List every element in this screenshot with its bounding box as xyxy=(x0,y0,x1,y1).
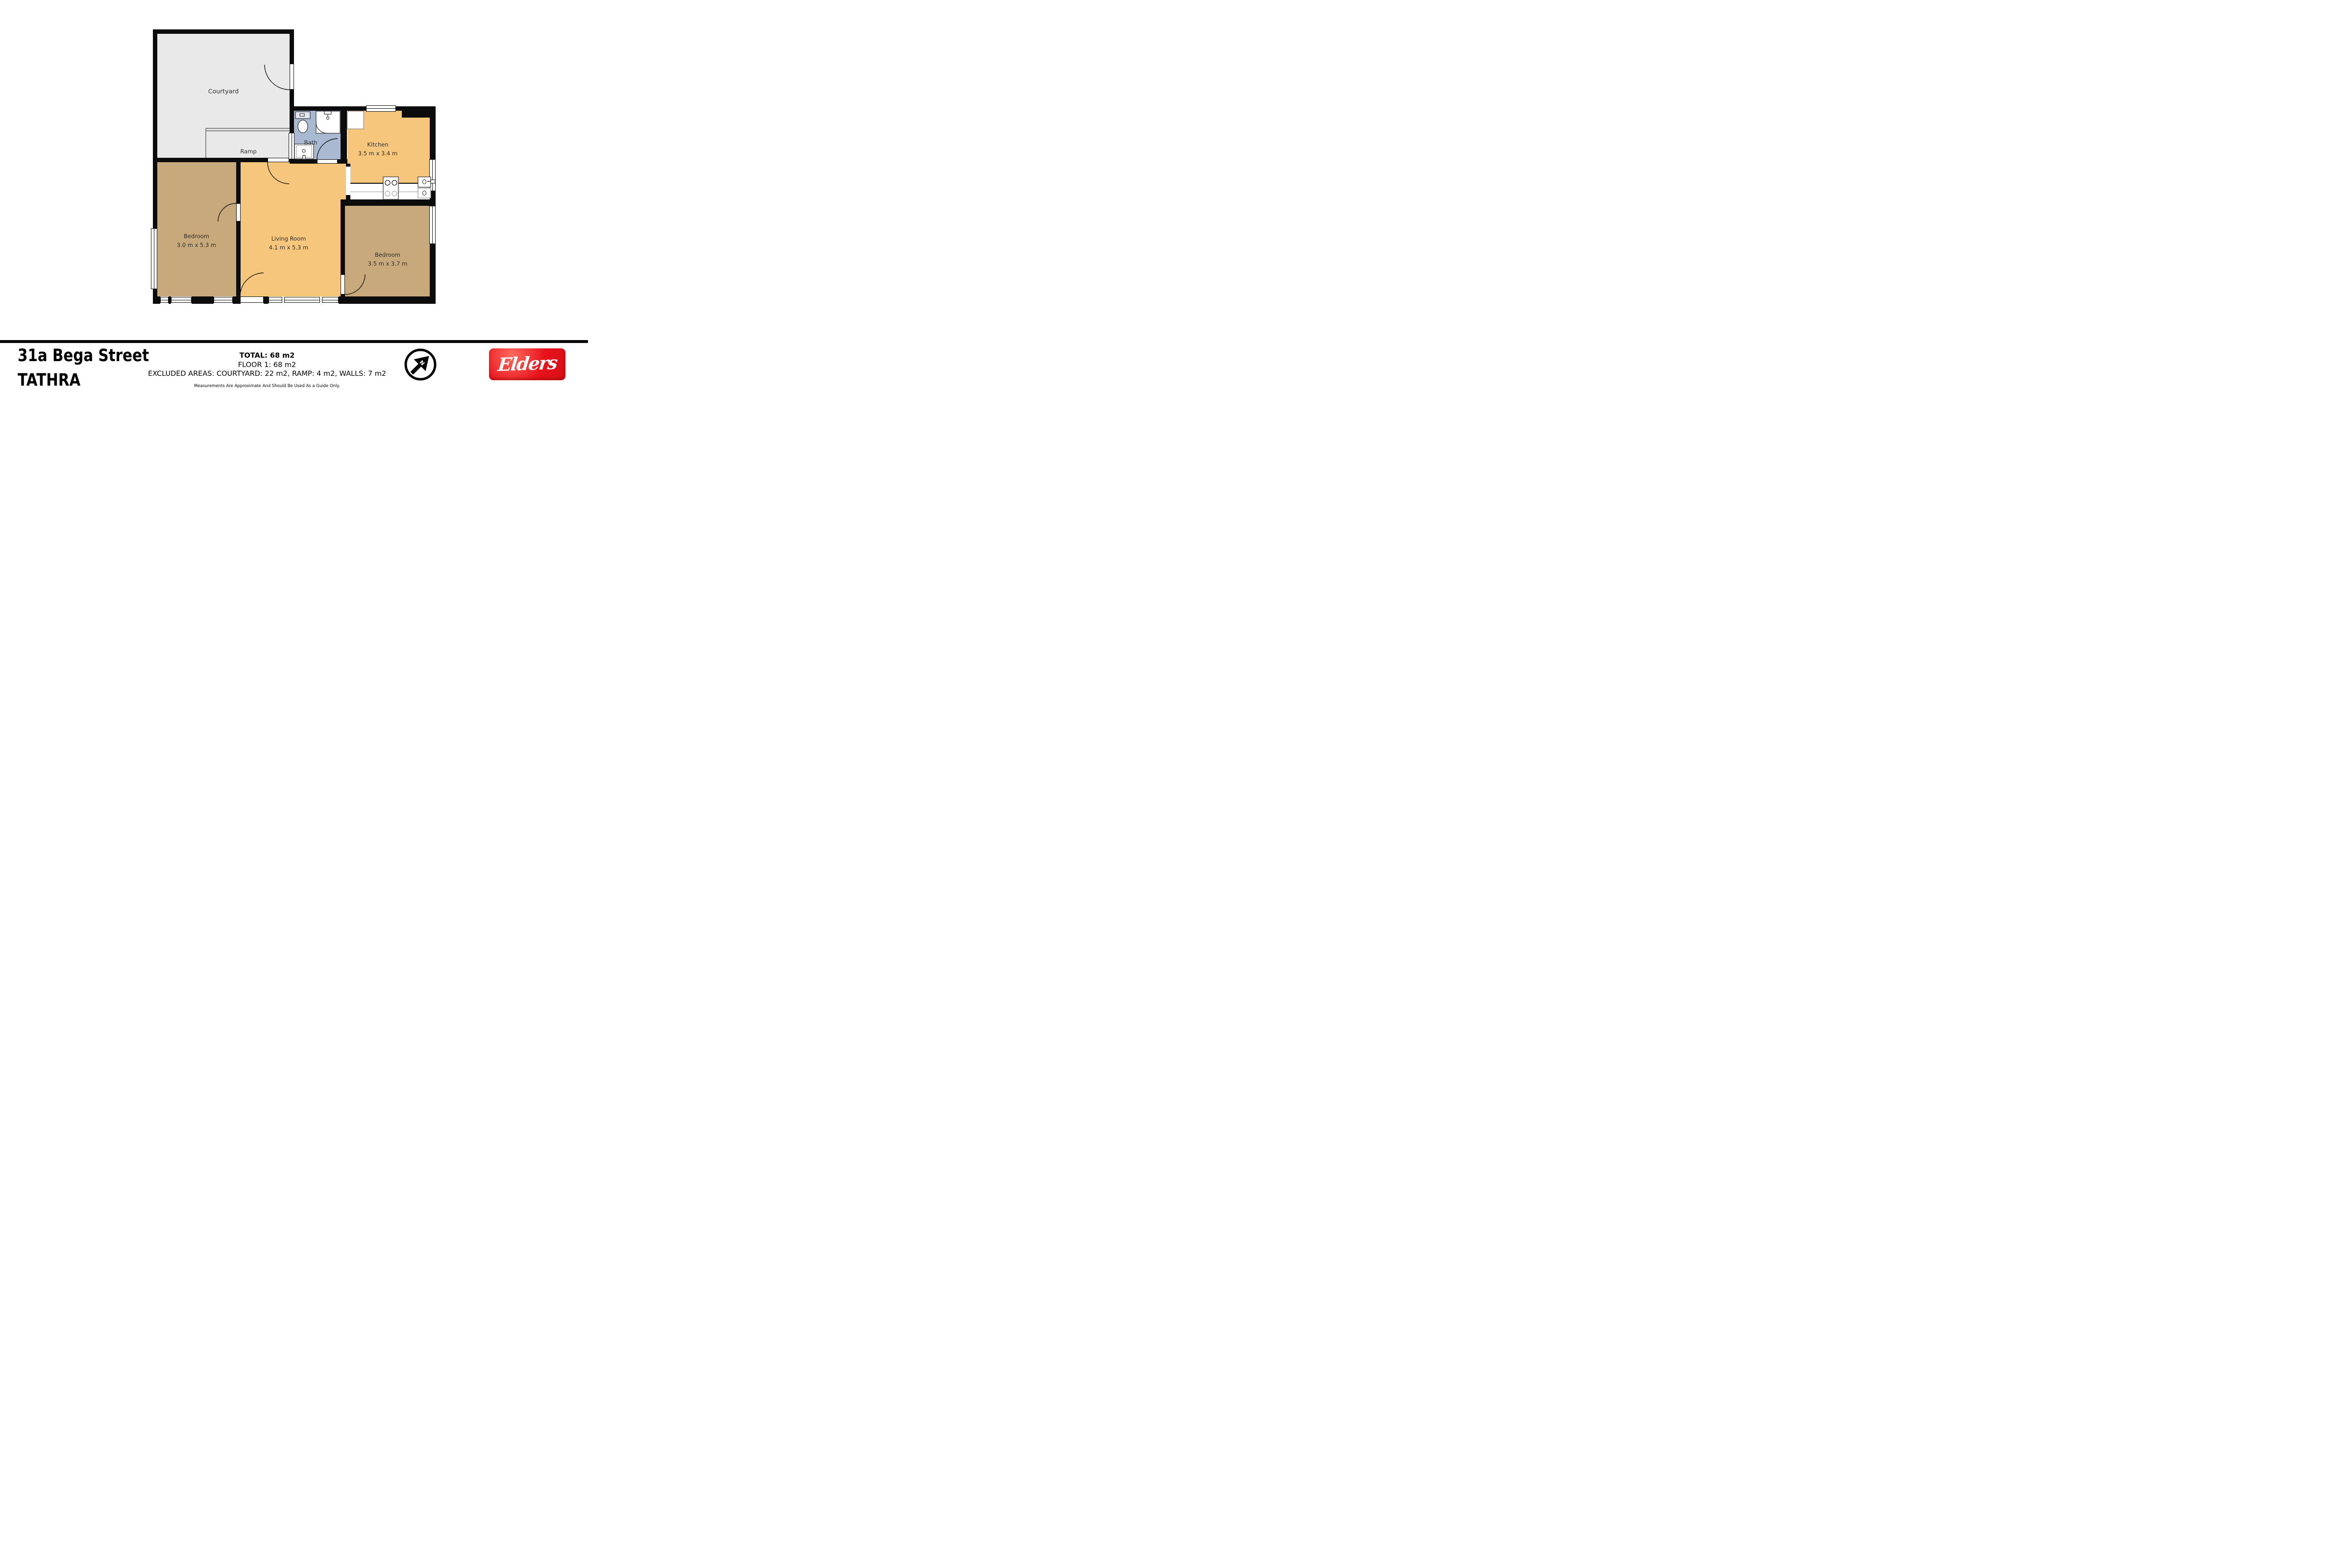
wall-segment xyxy=(290,90,294,133)
room-label-ramp: Ramp xyxy=(240,147,256,156)
window xyxy=(151,228,157,289)
door-leaf xyxy=(341,274,345,294)
room-name: Kitchen xyxy=(358,141,397,149)
window xyxy=(171,297,192,303)
room-name: Ramp xyxy=(240,147,256,156)
wall-segment xyxy=(233,296,240,304)
floorplan-page: Courtyard Ramp Bath Kitchen 3.5 m x 3.4 … xyxy=(0,0,588,392)
address-line2: TATHRA xyxy=(18,368,149,392)
wall-segment xyxy=(236,162,241,203)
footer-divider xyxy=(0,340,588,343)
wall-segment xyxy=(339,296,436,304)
wall-segment xyxy=(192,296,214,304)
excluded-areas: EXCLUDED AREAS: COURTYARD: 22 m2, RAMP: … xyxy=(145,369,390,378)
elders-logo: Elders xyxy=(489,348,565,380)
address-line1: 31a Bega Street xyxy=(18,344,149,368)
room-label-courtyard: Courtyard xyxy=(208,86,239,96)
total-area: TOTAL: 68 m2 xyxy=(145,351,390,361)
room-label-kitchen: Kitchen 3.5 m x 3.4 m xyxy=(358,141,397,158)
wall-segment xyxy=(430,244,436,304)
area-summary: TOTAL: 68 m2 FLOOR 1: 68 m2 EXCLUDED ARE… xyxy=(145,351,390,389)
room-label-bath: Bath xyxy=(304,139,318,147)
north-arrow-icon: N xyxy=(402,346,439,383)
kitchen-counter xyxy=(347,183,430,200)
wall-segment xyxy=(290,29,294,64)
wall-segment xyxy=(153,29,294,34)
window xyxy=(214,297,233,303)
door-leaf xyxy=(240,296,264,303)
wall-segment xyxy=(402,106,436,118)
wall-segment xyxy=(153,296,160,304)
window-mullion xyxy=(319,297,322,303)
room-dims: 3.0 m x 5.3 m xyxy=(177,241,216,250)
door-leaf xyxy=(236,203,241,221)
living-room-floor xyxy=(241,162,346,296)
window-mullion xyxy=(282,297,285,303)
window xyxy=(366,105,396,112)
door-leaf xyxy=(317,159,338,164)
room-label-bedroom-left: Bedroom 3.0 m x 5.3 m xyxy=(177,232,216,250)
window xyxy=(289,133,294,159)
wall-segment xyxy=(430,118,436,159)
bath-floor xyxy=(294,111,341,159)
wall-segment xyxy=(341,106,347,164)
room-name: Bedroom xyxy=(368,251,407,260)
elders-logo-text: Elders xyxy=(497,351,558,377)
bedroom-left-floor xyxy=(157,162,236,296)
door-leaf xyxy=(290,64,294,90)
doorway-opening xyxy=(346,167,350,195)
room-name: Bath xyxy=(304,139,318,147)
room-label-living-room: Living Room 4.1 m x 5.3 m xyxy=(269,235,308,252)
room-dims: 3.5 m x 3.7 m xyxy=(368,260,407,269)
window xyxy=(160,297,169,303)
wall-segment xyxy=(153,158,268,162)
room-dims: 4.1 m x 5.3 m xyxy=(269,244,308,252)
room-dims: 3.5 m x 3.4 m xyxy=(358,149,397,158)
wall-segment xyxy=(264,296,269,304)
room-label-bedroom-right: Bedroom 3.5 m x 3.7 m xyxy=(368,251,407,269)
wall-segment xyxy=(290,106,366,111)
window xyxy=(429,206,436,244)
room-name: Bedroom xyxy=(177,232,216,241)
room-name: Living Room xyxy=(269,235,308,244)
wall-segment xyxy=(341,206,345,274)
room-name: Courtyard xyxy=(208,86,239,96)
window xyxy=(269,297,339,303)
wall-segment xyxy=(236,221,241,304)
wall-segment xyxy=(290,159,317,164)
door-leaf xyxy=(268,158,289,162)
floor-area: FLOOR 1: 68 m2 xyxy=(145,361,390,369)
wall-segment xyxy=(153,29,157,228)
property-address: 31a Bega Street TATHRA xyxy=(18,344,149,392)
disclaimer: Measurements Are Approximate And Should … xyxy=(145,384,390,389)
floor-plan: Courtyard Ramp Bath Kitchen 3.5 m x 3.4 … xyxy=(0,0,588,340)
window xyxy=(429,159,436,191)
wall-segment xyxy=(341,199,436,206)
